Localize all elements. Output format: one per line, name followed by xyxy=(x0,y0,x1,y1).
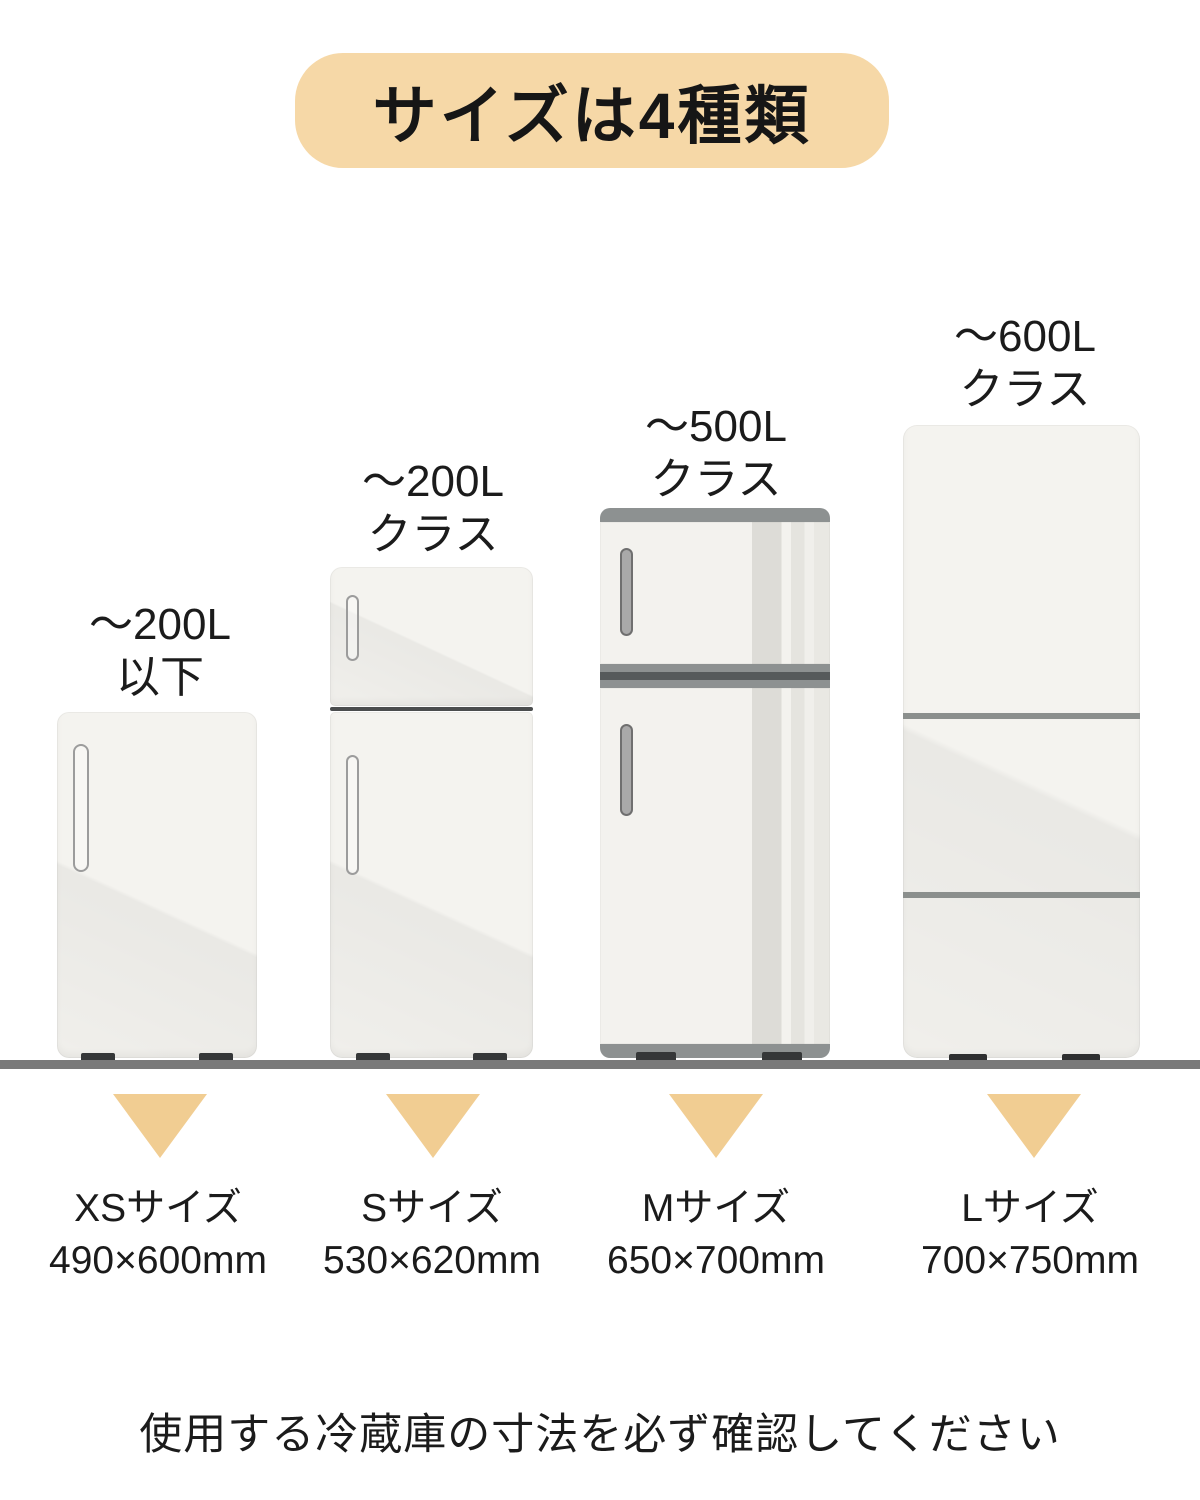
fridge-xs-handle-icon xyxy=(73,744,89,872)
fridge-m-top-trim xyxy=(600,508,830,522)
capacity-xs-line2: 以下 xyxy=(30,651,290,704)
size-name-s: Sサイズ xyxy=(282,1183,582,1235)
capacity-label-m: ～500L クラス xyxy=(586,400,846,506)
size-label-xs: XSサイズ 490×600mm xyxy=(8,1183,308,1287)
size-dimensions-l: 700×750mm xyxy=(880,1235,1180,1287)
size-dimensions-xs: 490×600mm xyxy=(8,1235,308,1287)
footer-note: 使用する冷蔵庫の寸法を必ず確認してください xyxy=(0,1400,1200,1462)
fridge-m-main-handle-icon xyxy=(620,724,633,816)
capacity-m-line2: クラス xyxy=(586,453,846,506)
down-triangle-icon-l xyxy=(987,1094,1081,1158)
size-label-s: Sサイズ 530×620mm xyxy=(282,1183,582,1287)
size-dimensions-m: 650×700mm xyxy=(566,1235,866,1287)
capacity-label-l: ～600L クラス xyxy=(895,310,1155,416)
down-triangle-icon-xs xyxy=(113,1094,207,1158)
size-name-xs: XSサイズ xyxy=(8,1183,308,1235)
floor-line xyxy=(0,1060,1200,1069)
fridge-s-freezer-door xyxy=(330,567,533,706)
capacity-xs-line1: ～200L xyxy=(30,598,290,651)
capacity-l-line1: ～600L xyxy=(895,310,1155,363)
fridge-xs-icon xyxy=(57,712,257,1058)
fridge-m-door-divider xyxy=(600,664,830,688)
down-triangle-icon-m xyxy=(669,1094,763,1158)
capacity-s-line2: クラス xyxy=(303,508,563,561)
size-name-l: Lサイズ xyxy=(880,1183,1180,1235)
capacity-l-line2: クラス xyxy=(895,363,1155,416)
capacity-label-s: ～200L クラス xyxy=(303,455,563,561)
size-guide-infographic: サイズは4種類 ～200L 以下 ～200L クラス ～500L クラス ～60… xyxy=(0,0,1200,1500)
size-label-m: Mサイズ 650×700mm xyxy=(566,1183,866,1287)
fridge-s-main-handle-icon xyxy=(346,755,359,875)
fridge-s-freezer-handle-icon xyxy=(346,595,359,661)
page-title: サイズは4種類 xyxy=(373,65,812,157)
down-triangle-icon-s xyxy=(386,1094,480,1158)
size-name-m: Mサイズ xyxy=(566,1183,866,1235)
title-badge: サイズは4種類 xyxy=(295,53,889,168)
fridge-s-main-door xyxy=(330,712,533,1058)
capacity-s-line1: ～200L xyxy=(303,455,563,508)
fridge-m-freezer-door xyxy=(600,522,830,664)
fridge-m-freezer-handle-icon xyxy=(620,548,633,636)
fridge-l-body xyxy=(903,425,1140,1058)
fridge-l-divider-lower xyxy=(903,892,1140,898)
size-dimensions-s: 530×620mm xyxy=(282,1235,582,1287)
size-label-l: Lサイズ 700×750mm xyxy=(880,1183,1180,1287)
fridge-m-icon xyxy=(600,508,830,1058)
fridge-m-main-door xyxy=(600,688,830,1044)
fridge-s-icon xyxy=(330,567,533,1058)
capacity-m-line1: ～500L xyxy=(586,400,846,453)
fridge-s-door-divider xyxy=(330,707,533,711)
fridge-l-divider-upper xyxy=(903,713,1140,719)
fridge-l-icon xyxy=(903,425,1140,1058)
capacity-label-xs: ～200L 以下 xyxy=(30,598,290,704)
